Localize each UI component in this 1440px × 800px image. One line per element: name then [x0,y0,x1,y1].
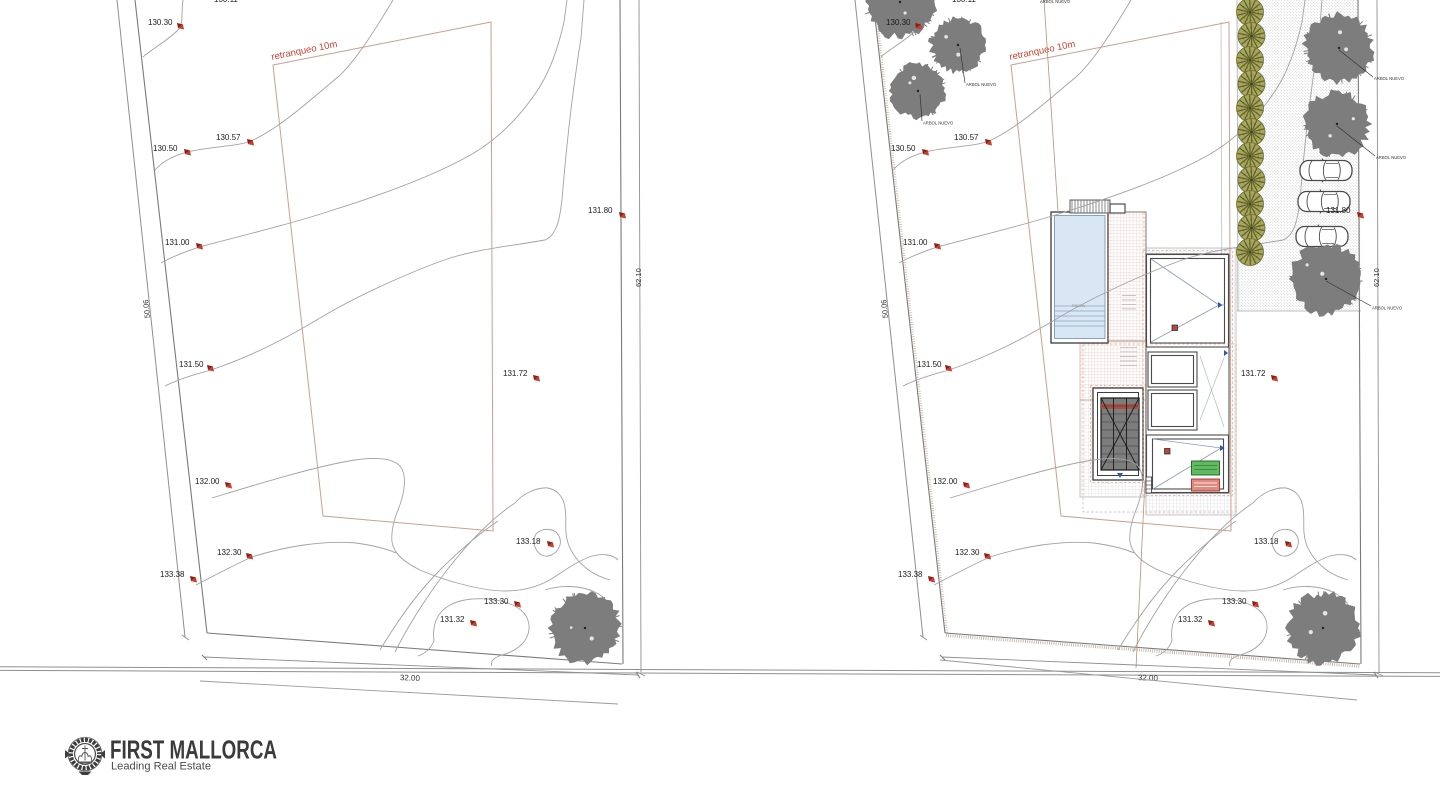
svg-text:130.30: 130.30 [886,18,911,27]
svg-text:130.11: 130.11 [214,0,238,4]
svg-text:133.30: 133.30 [484,597,509,606]
svg-text:130.11: 130.11 [952,0,976,4]
svg-text:133.38: 133.38 [160,570,185,579]
svg-text:130.50: 130.50 [153,144,178,153]
svg-text:ARBOL NUEVO: ARBOL NUEVO [1376,155,1407,160]
svg-text:ARBOL NUEVO: ARBOL NUEVO [1040,0,1071,4]
svg-text:130.57: 130.57 [216,133,241,142]
svg-text:133.18: 133.18 [516,537,541,546]
svg-text:62.10: 62.10 [1372,268,1381,287]
svg-text:ARBOL NUEVO: ARBOL NUEVO [923,121,954,126]
svg-text:133.38: 133.38 [898,570,923,579]
svg-text:132.00: 132.00 [195,477,220,486]
svg-text:132.00: 132.00 [933,477,958,486]
svg-text:131.50: 131.50 [179,360,204,369]
svg-text:131.72: 131.72 [1241,369,1266,378]
svg-text:ARBOL NUEVO: ARBOL NUEVO [1374,76,1405,81]
svg-text:131.80: 131.80 [1326,206,1351,215]
svg-text:131.80: 131.80 [588,206,613,215]
svg-text:132.30: 132.30 [955,548,980,557]
svg-text:131.32: 131.32 [440,615,465,624]
svg-text:131.72: 131.72 [503,369,528,378]
svg-text:130.50: 130.50 [891,144,916,153]
svg-text:131.32: 131.32 [1178,615,1203,624]
svg-text:ARBOL NUEVO: ARBOL NUEVO [1372,306,1403,311]
svg-text:131.00: 131.00 [165,238,190,247]
svg-text:32.00: 32.00 [400,673,421,683]
svg-text:132.30: 132.30 [217,548,242,557]
svg-text:133.30: 133.30 [1222,597,1247,606]
svg-text:62.10: 62.10 [634,268,643,287]
svg-text:131.00: 131.00 [903,238,928,247]
svg-text:Leading Real Estate: Leading Real Estate [111,761,211,773]
svg-text:32.00: 32.00 [1138,673,1159,683]
svg-text:131.50: 131.50 [917,360,942,369]
svg-text:130.30: 130.30 [148,18,173,27]
svg-text:133.18: 133.18 [1254,537,1279,546]
svg-text:130.57: 130.57 [954,133,979,142]
svg-text:ARBOL NUEVO: ARBOL NUEVO [966,82,997,87]
